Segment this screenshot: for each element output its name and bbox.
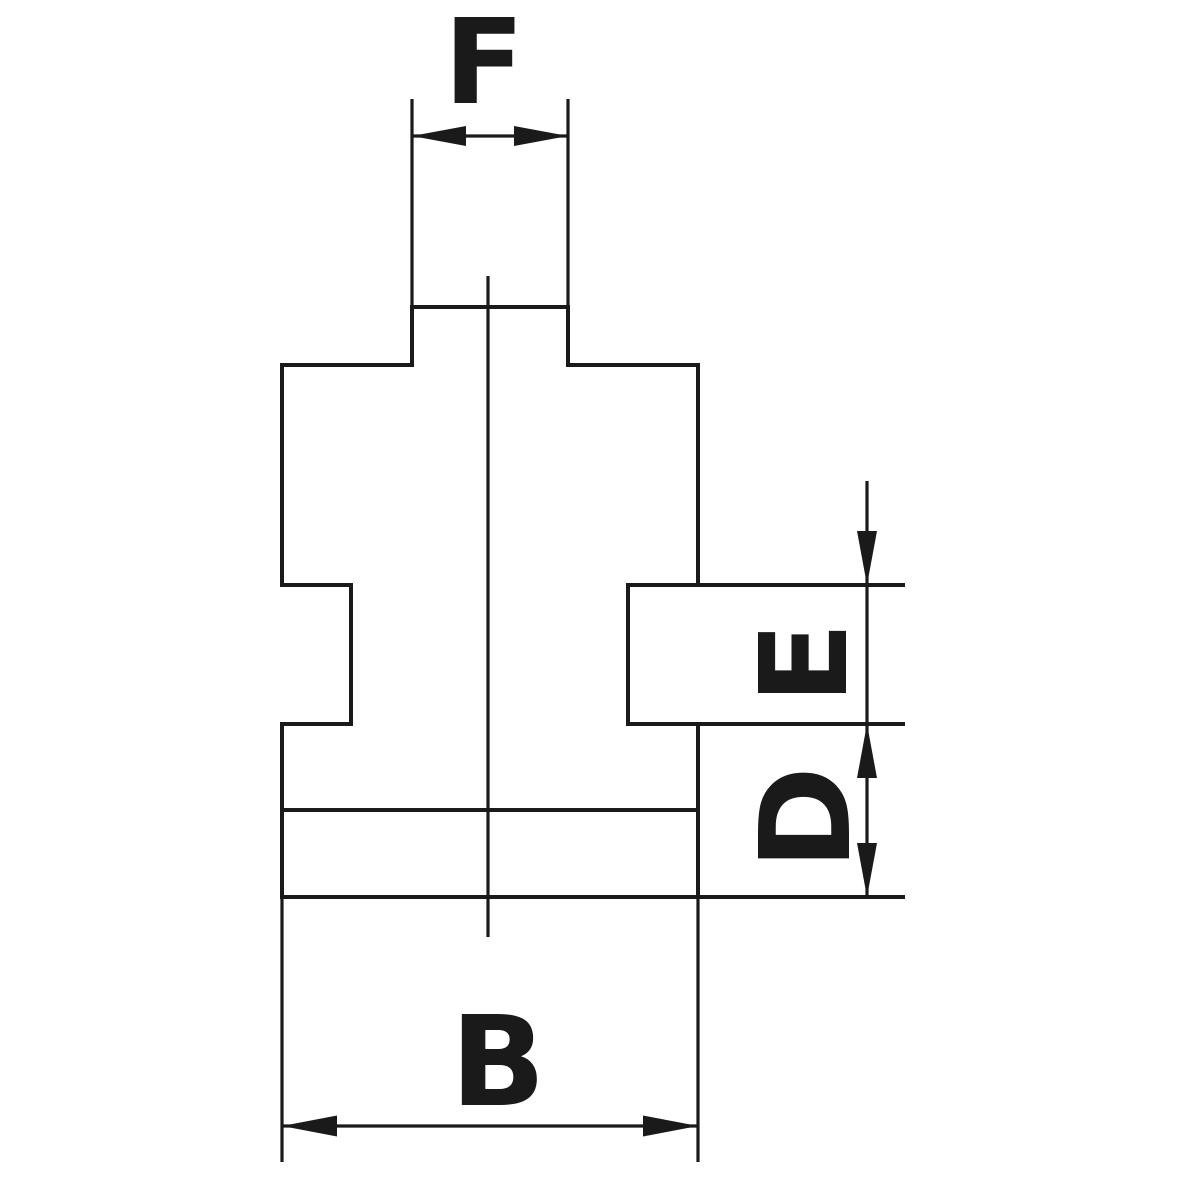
b-arrowhead-right-icon	[643, 1116, 698, 1137]
dimension-B: B	[282, 897, 698, 1162]
dimension-E-D: E D	[734, 481, 879, 897]
dimension-label-E: E	[736, 622, 875, 704]
drawing-canvas: F E D B	[0, 0, 1200, 1200]
dimension-label-D: D	[734, 766, 879, 870]
e-arrowhead-down-icon	[857, 531, 877, 585]
jaw-cross-section-drawing: F E D B	[0, 0, 1200, 1200]
dimension-F: F	[412, 0, 568, 307]
dimension-label-F: F	[444, 0, 525, 131]
b-arrowhead-left-icon	[282, 1116, 337, 1137]
dimension-label-B: B	[450, 990, 545, 1135]
